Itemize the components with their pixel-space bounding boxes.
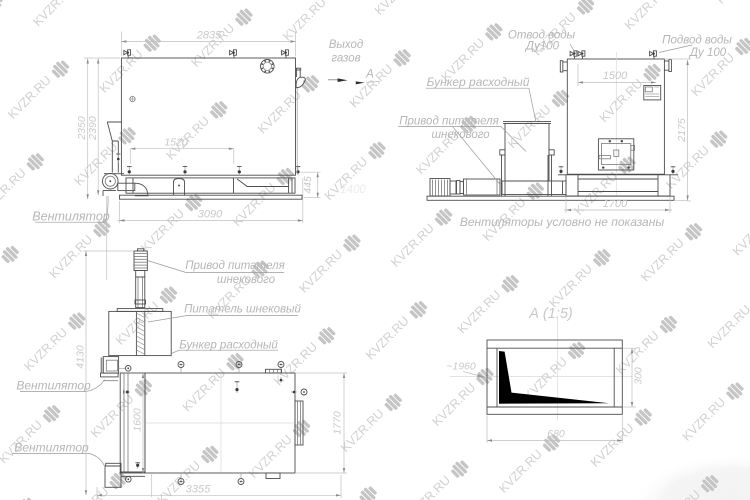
svg-text:Вентилятор: Вентилятор	[16, 379, 91, 393]
svg-text:Привод питателя: Привод питателя	[185, 260, 285, 272]
svg-text:1770: 1770	[332, 411, 344, 435]
svg-text:шнекового: шнекового	[432, 129, 491, 141]
svg-text:Выход: Выход	[329, 39, 364, 51]
svg-text:445: 445	[302, 176, 314, 194]
svg-text:Питатель шнековый: Питатель шнековый	[184, 304, 301, 316]
svg-text:1600: 1600	[132, 408, 144, 432]
svg-text:Подвод воды: Подвод воды	[662, 35, 732, 47]
svg-text:3355: 3355	[186, 483, 211, 495]
svg-text:газов: газов	[331, 53, 360, 65]
svg-text:А (1:5): А (1:5)	[528, 306, 573, 322]
svg-text:Ду 100: Ду 100	[688, 47, 727, 59]
svg-text:A: A	[365, 69, 374, 81]
svg-text:680: 680	[547, 428, 565, 440]
svg-text:1700: 1700	[603, 198, 628, 210]
svg-text:Вентилятор: Вентилятор	[32, 210, 109, 224]
svg-text:1400: 1400	[340, 184, 366, 196]
svg-text:Ду100: Ду100	[524, 41, 560, 53]
svg-text:Вентилятор: Вентилятор	[14, 441, 89, 455]
svg-text:Бункер расходный: Бункер расходный	[179, 340, 278, 352]
svg-text:Привод питателя: Привод питателя	[399, 116, 499, 128]
svg-text:шнекового: шнекового	[217, 274, 276, 286]
svg-text:Вентиляторы условно не показан: Вентиляторы условно не показаны	[460, 215, 665, 229]
svg-text:2175: 2175	[676, 118, 688, 143]
svg-text:2835: 2835	[196, 30, 222, 42]
svg-text:~1960: ~1960	[446, 361, 476, 373]
svg-text:1500: 1500	[603, 70, 628, 82]
svg-text:300: 300	[633, 367, 645, 385]
svg-text:3090: 3090	[198, 209, 223, 221]
svg-text:4130: 4130	[75, 345, 87, 369]
svg-text:2390: 2390	[87, 116, 99, 141]
svg-text:Бункер расходный: Бункер расходный	[427, 75, 530, 89]
svg-text:1520: 1520	[164, 137, 188, 149]
